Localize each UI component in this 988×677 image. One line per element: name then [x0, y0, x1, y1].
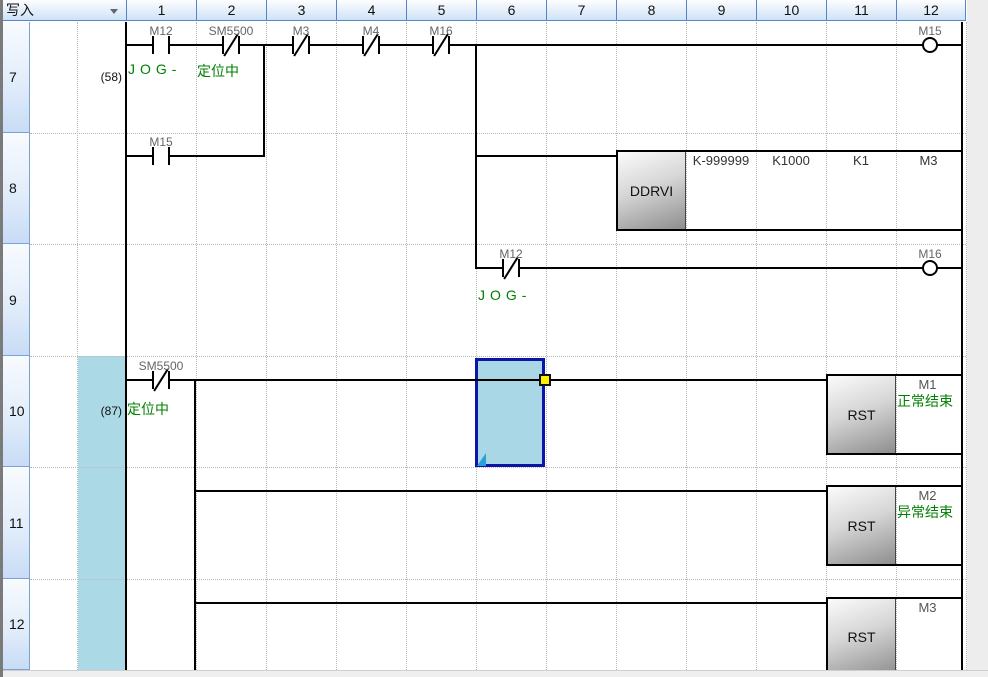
row-header-9: 9	[3, 244, 30, 356]
grid-line	[616, 22, 617, 670]
instruction-mnemonic-box: RST	[828, 599, 896, 675]
col-header-5: 5	[406, 0, 476, 21]
row-header-12: 12	[3, 579, 30, 670]
rung8-ddrvi-feed-wire	[476, 155, 617, 157]
instruction-rst-m2[interactable]: RST M2 异常结束	[826, 485, 963, 566]
step-number-58: (58)	[55, 70, 122, 84]
left-power-rail	[125, 22, 127, 670]
device-label: M15	[895, 24, 965, 38]
col-header-1: 1	[126, 0, 196, 21]
rung8-wire	[126, 155, 265, 157]
col-header-2: 2	[196, 0, 266, 21]
grid-line	[77, 22, 78, 670]
right-power-rail	[961, 22, 963, 670]
selected-cell[interactable]	[475, 358, 545, 467]
instruction-param: K1000	[756, 153, 826, 168]
grid-line	[756, 22, 757, 670]
instruction-rst-m1[interactable]: RST M1 正常结束	[826, 374, 963, 455]
contact-no-m15[interactable]	[152, 147, 170, 165]
contact-nc-m3[interactable]	[292, 36, 310, 54]
device-label: SM5500	[196, 24, 266, 38]
instruction-param: M3	[896, 153, 961, 168]
col-header-8: 8	[616, 0, 686, 21]
col-header-12: 12	[896, 0, 966, 21]
grid-line	[896, 22, 897, 670]
instruction-mnemonic-box: DDRVI	[618, 152, 686, 229]
coil-m16[interactable]	[922, 260, 938, 276]
grid-line	[30, 356, 966, 357]
grid-line	[30, 579, 966, 580]
window-left-border	[0, 0, 3, 677]
col-header-7: 7	[546, 0, 616, 21]
col-header-10: 10	[756, 0, 826, 21]
device-comment: 异常结束	[897, 502, 953, 522]
row-header-7: 7	[3, 22, 30, 133]
rung11-wire	[195, 490, 827, 492]
grid-line	[30, 244, 966, 245]
branch-wire-col6	[475, 44, 477, 269]
device-label: M3	[266, 24, 336, 38]
grid-line	[196, 22, 197, 670]
branch-wire-r7-r8	[263, 44, 265, 157]
device-label: M16	[406, 24, 476, 38]
contact-nc-m12[interactable]	[502, 259, 520, 277]
contact-nc-m4[interactable]	[362, 36, 380, 54]
contact-nc-m16[interactable]	[432, 36, 450, 54]
rung10-wire	[126, 379, 827, 381]
row-header-8: 8	[3, 133, 30, 244]
device-label: M16	[895, 247, 965, 261]
col-header-11: 11	[826, 0, 896, 21]
contact-no-m12[interactable]	[152, 36, 170, 54]
device-label: M4	[336, 24, 406, 38]
grid-line	[686, 22, 687, 670]
rung9-wire	[476, 267, 962, 269]
col-header-9: 9	[686, 0, 756, 21]
device-comment: 正常结束	[897, 391, 953, 411]
device-comment: 定位中	[127, 399, 169, 419]
instruction-param: K-999999	[686, 153, 756, 168]
device-label: M15	[126, 135, 196, 149]
contact-nc-sm5500[interactable]	[222, 36, 240, 54]
instruction-param: K1	[826, 153, 896, 168]
grid-line	[266, 22, 267, 670]
mode-dropdown[interactable]: 写入	[3, 0, 126, 21]
grid-line	[30, 467, 966, 468]
instruction-ddrvi[interactable]: DDRVI K-999999 K1000 K1 M3	[616, 150, 963, 231]
col-header-3: 3	[266, 0, 336, 21]
row-header-11: 11	[3, 467, 30, 579]
instruction-mnemonic-box: RST	[828, 376, 896, 453]
instruction-param: M2	[894, 488, 961, 503]
grid-line	[546, 22, 547, 670]
step-number-87: (87)	[55, 404, 122, 418]
device-label: M12	[476, 247, 546, 261]
grid-line	[406, 22, 407, 670]
branch-wire-r10-r12	[194, 379, 196, 670]
rung7-wire	[126, 44, 962, 46]
device-label: M12	[126, 24, 196, 38]
rung12-wire	[195, 602, 827, 604]
caret-down-icon	[110, 9, 118, 14]
device-label: SM5500	[126, 359, 196, 373]
device-comment: 定位中	[197, 61, 239, 81]
grid-line	[826, 22, 827, 670]
grid-line	[30, 133, 966, 134]
col-header-6: 6	[476, 0, 546, 21]
grid-line	[336, 22, 337, 670]
instruction-mnemonic-box: RST	[828, 487, 896, 564]
instruction-param: M3	[894, 600, 961, 615]
horizontal-scrollbar-track[interactable]	[3, 670, 988, 677]
instruction-param: M1	[894, 377, 961, 392]
contact-nc-sm5500-2[interactable]	[152, 371, 170, 389]
row-header-10: 10	[3, 356, 30, 467]
selection-flag-icon	[477, 453, 486, 466]
device-comment: JOG-	[478, 287, 531, 303]
coil-m15[interactable]	[922, 37, 938, 53]
ladder-editor: 写入 1 2 3 4 5 6 7 8 9 10 11 12 7 8 9 10 1…	[0, 0, 988, 677]
selection-handle[interactable]	[539, 374, 551, 386]
instruction-rst-m3[interactable]: RST M3	[826, 597, 963, 677]
right-spacer-panel	[967, 0, 988, 677]
device-comment: JOG-	[128, 61, 181, 77]
mode-label: 写入	[6, 0, 34, 20]
col-header-4: 4	[336, 0, 406, 21]
